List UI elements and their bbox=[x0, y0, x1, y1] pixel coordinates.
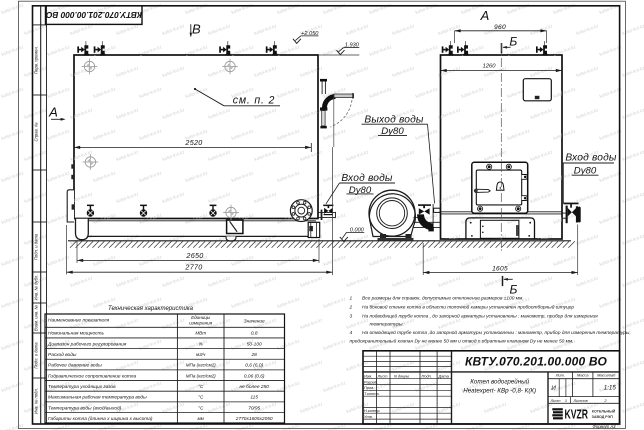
svg-text:Подп.: Подп. bbox=[422, 374, 432, 379]
svg-text:Справ. №: Справ. № bbox=[34, 122, 39, 141]
svg-text:Листов: Листов bbox=[573, 398, 588, 403]
svg-text:KVZR: KVZR bbox=[565, 407, 589, 422]
svg-text:Вход воды: Вход воды bbox=[341, 173, 393, 184]
svg-text:Гидравлическое сопротивление к: Гидравлическое сопротивление котла bbox=[48, 373, 136, 379]
svg-text:Рабочее давление воды: Рабочее давление воды bbox=[48, 363, 102, 369]
svg-text:Выход воды: Выход воды bbox=[364, 114, 424, 125]
svg-text:%: % bbox=[199, 341, 203, 346]
svg-text:Расход воды: Расход воды bbox=[48, 352, 77, 358]
svg-text:А: А bbox=[480, 8, 490, 23]
svg-text:70/95: 70/95 bbox=[248, 405, 260, 411]
svg-text:МПа (кгс/см2): МПа (кгс/см2) bbox=[186, 363, 216, 368]
svg-text:Перв. примен.: Перв. примен. bbox=[34, 46, 39, 74]
svg-text:КВТУ.070.201.00.000 ВО: КВТУ.070.201.00.000 ВО bbox=[465, 355, 607, 369]
svg-text:°С: °С bbox=[198, 395, 204, 400]
svg-text:И: И bbox=[551, 385, 556, 392]
svg-text:Номинальная мощность: Номинальная мощность bbox=[48, 331, 105, 337]
svg-text:Температура воды (вход/выход): Температура воды (вход/выход) bbox=[48, 405, 122, 411]
svg-text:измерения: измерения bbox=[189, 320, 213, 325]
svg-text:Формат А3: Формат А3 bbox=[593, 424, 617, 429]
svg-text:не более 250: не более 250 bbox=[240, 384, 270, 390]
svg-text:Максимальная рабочая температу: Максимальная рабочая температура воды bbox=[48, 395, 147, 401]
svg-text:N докум.: N докум. bbox=[394, 374, 410, 379]
svg-text:см. п. 2: см. п. 2 bbox=[233, 94, 275, 106]
svg-text:2650: 2650 bbox=[185, 251, 203, 260]
svg-text:Техническая характеристика: Техническая характеристика bbox=[108, 306, 194, 312]
svg-text:В: В bbox=[192, 21, 201, 36]
svg-text:температуры.: температуры. bbox=[370, 323, 404, 328]
svg-text:1:15: 1:15 bbox=[604, 385, 617, 392]
svg-text:м3/ч: м3/ч bbox=[196, 352, 206, 357]
svg-text:1: 1 bbox=[350, 295, 353, 301]
svg-text:КОТЕЛЬНЫЙ: КОТЕЛЬНЫЙ bbox=[592, 410, 616, 414]
svg-text:На боковой стенке котла в обла: На боковой стенке котла в области топочн… bbox=[362, 304, 574, 311]
svg-text:МПа (кгс/см2): МПа (кгс/см2) bbox=[186, 373, 216, 378]
svg-text:Лист: Лист bbox=[377, 374, 389, 379]
svg-text:Масштаб: Масштаб bbox=[597, 373, 616, 378]
svg-text:1: 1 bbox=[565, 398, 567, 403]
svg-text:2770: 2770 bbox=[184, 263, 202, 272]
svg-text:предохранительный клапан Dу н: предохранительный клапан Dу не менее 50 … bbox=[350, 337, 574, 344]
svg-text:+2.050: +2.050 bbox=[301, 31, 319, 37]
svg-text:0,6 (6,0): 0,6 (6,0) bbox=[245, 363, 263, 369]
svg-text:2520: 2520 bbox=[184, 138, 202, 147]
svg-text:0,8: 0,8 bbox=[251, 331, 258, 337]
svg-text:Т.контр.: Т.контр. bbox=[364, 391, 380, 396]
svg-text:КВТУ.070.201.00.000 ВО: КВТУ.070.201.00.000 ВО bbox=[45, 10, 142, 20]
svg-text:960: 960 bbox=[494, 24, 506, 31]
svg-text:1605: 1605 bbox=[492, 265, 508, 272]
svg-text:Утв.: Утв. bbox=[364, 414, 373, 419]
svg-text:ЗАВОД РЭП: ЗАВОД РЭП bbox=[592, 415, 614, 419]
svg-text:Б: Б bbox=[510, 283, 518, 297]
svg-text:28: 28 bbox=[251, 352, 258, 358]
svg-text:Единицы: Единицы bbox=[191, 315, 211, 320]
svg-text:Температура уходящих газов: Температура уходящих газов bbox=[48, 384, 116, 390]
svg-text:2: 2 bbox=[349, 305, 353, 311]
svg-text:Значение: Значение bbox=[244, 319, 265, 325]
svg-text:Инв. № подл.: Инв. № подл. bbox=[34, 388, 39, 414]
svg-text:Лит.: Лит. bbox=[555, 373, 565, 378]
svg-text:На отводящей трубе котла ,до з: На отводящей трубе котла ,до запорной ар… bbox=[362, 329, 631, 336]
svg-text:Б: Б bbox=[509, 34, 517, 48]
svg-text:Котел водогрейный: Котел водогрейный bbox=[470, 378, 529, 385]
svg-text:Пров.: Пров. bbox=[364, 385, 374, 390]
svg-text:Габариты котла (длинна х ширин: Габариты котла (длинна х ширина х высота… bbox=[48, 416, 153, 422]
svg-text:МВт: МВт bbox=[195, 331, 206, 336]
svg-text:3: 3 bbox=[350, 313, 353, 319]
svg-text:Лист: Лист bbox=[550, 398, 562, 403]
svg-text:1260: 1260 bbox=[483, 64, 497, 70]
svg-text:На подводящей трубе котла , д: На подводящей трубе котла , до запорной … bbox=[362, 312, 598, 319]
svg-text:Н.контр.: Н.контр. bbox=[364, 408, 380, 413]
svg-text:Изм.: Изм. bbox=[364, 374, 372, 379]
svg-text:°С: °С bbox=[198, 405, 204, 410]
svg-text:Подп. и дата: Подп. и дата bbox=[34, 233, 39, 260]
svg-text:Heatexpert- КВр -0,8- К(К): Heatexpert- КВр -0,8- К(К) bbox=[463, 387, 536, 394]
svg-text:°С: °С bbox=[198, 384, 204, 389]
svg-text:мм: мм bbox=[198, 416, 205, 421]
svg-text:Наименование показателя: Наименование показателя bbox=[48, 318, 110, 324]
svg-text:115: 115 bbox=[250, 395, 258, 401]
svg-text:Масса: Масса bbox=[577, 373, 589, 378]
svg-text:0,06 (0,6): 0,06 (0,6) bbox=[244, 373, 265, 379]
svg-text:50-100: 50-100 bbox=[247, 341, 262, 347]
svg-text:А: А bbox=[48, 104, 58, 119]
svg-text:Инв. № дубл.: Инв. № дубл. bbox=[34, 275, 39, 301]
svg-text:2770х1605х2050: 2770х1605х2050 bbox=[235, 416, 273, 422]
svg-text:Разраб.: Разраб. bbox=[364, 379, 378, 384]
svg-text:Диапазон рабочего регулировани: Диапазон рабочего регулирования bbox=[47, 341, 127, 347]
svg-text:Подп. и дата: Подп. и дата bbox=[34, 342, 39, 369]
svg-text:4: 4 bbox=[350, 330, 353, 336]
svg-text:Все размеры для справок, допус: Все размеры для справок, допустимые откл… bbox=[362, 295, 524, 301]
svg-text:Взам. инв. №: Взам. инв. № bbox=[34, 305, 39, 331]
svg-text:1.930: 1.930 bbox=[345, 43, 360, 49]
svg-text:Вход воды: Вход воды bbox=[565, 153, 617, 164]
svg-text:Дата: Дата bbox=[438, 374, 450, 379]
